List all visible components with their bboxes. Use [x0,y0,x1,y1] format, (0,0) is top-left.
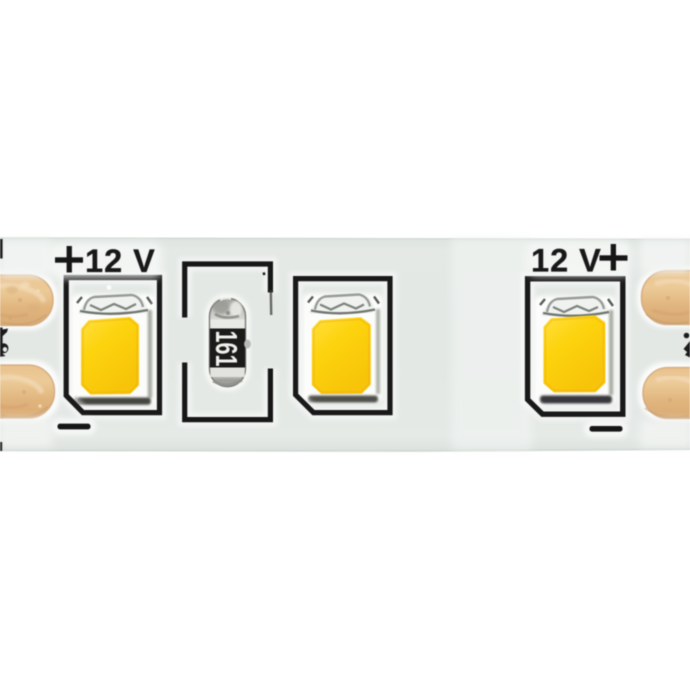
svg-text:161: 161 [209,331,244,367]
svg-text:12 V: 12 V [85,243,156,279]
svg-text:12 V: 12 V [531,243,602,279]
